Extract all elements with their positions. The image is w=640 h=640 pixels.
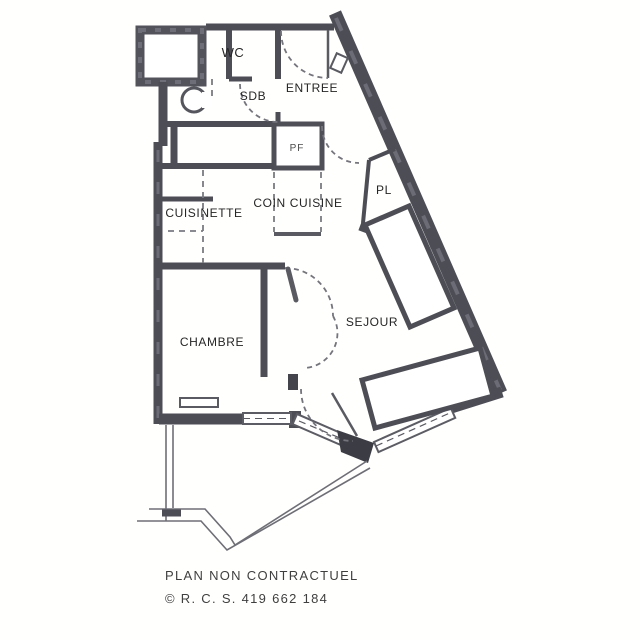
floorplan-canvas: WC SDB ENTREE PF COIN CUISINE PL CUISINE… [0,0,640,640]
registration-text: © R. C. S. 419 662 184 [165,591,328,606]
hall-door-arc [322,126,359,163]
room-label-sdb: SDB [240,89,266,103]
disclaimer-text: PLAN NON CONTRACTUEL [165,568,359,583]
bay-door-hinge-block [288,374,298,390]
room-label-cuisinette: CUISINETTE [165,206,242,220]
living-door-arc [305,316,337,368]
room-label-entree: ENTREE [286,81,338,95]
entry-handle-box [330,53,347,72]
shaft-box [140,30,202,82]
washbasin-opening [202,92,211,108]
room-label-wc: WC [222,45,245,60]
entry-door-arc [281,31,328,78]
footer: PLAN NON CONTRACTUEL © R. C. S. 419 662 … [165,568,359,606]
room-label-pf: PF [290,143,305,154]
floorplan-drawing: WC SDB ENTREE PF COIN CUISINE PL CUISINE… [0,0,640,640]
room-label-sejour: SEJOUR [346,315,398,329]
balcony-railing [137,425,370,550]
room-label-pl: PL [376,183,392,197]
wall-diagonal [335,13,501,393]
room-label-coin-cuisine: COIN CUISINE [253,196,342,210]
bedroom-radiator [180,398,218,407]
living-furniture-lower [362,348,493,428]
bedroom-door-leaf [288,269,296,300]
pl-closet-wall-left [363,160,369,223]
bay-door-leaf [332,393,357,436]
room-label-chambre: CHAMBRE [180,335,244,349]
